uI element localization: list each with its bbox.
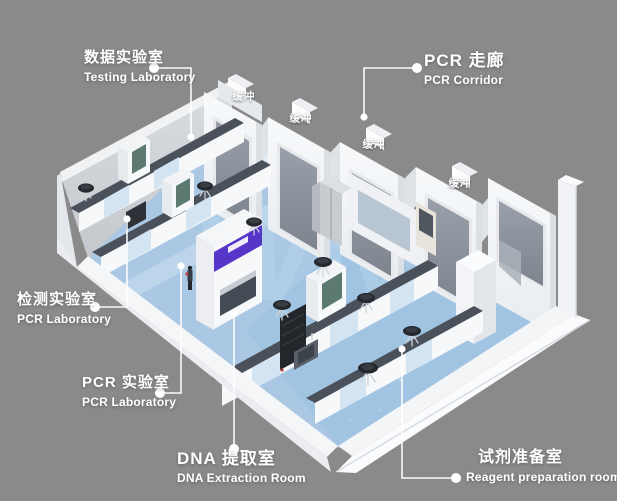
- callout-zh-label: DNA 提取室: [177, 449, 306, 468]
- buffer-room-label-2: 缓冲: [290, 111, 313, 126]
- leader-dot: [360, 113, 367, 120]
- leader-dot: [451, 473, 461, 483]
- buffer-room-label-3: 缓冲: [363, 137, 386, 152]
- callout-pcr-corridor: PCR 走廊 PCR Corridor: [424, 51, 505, 88]
- callout-zh-label: 检测实验室: [17, 290, 111, 309]
- leader-dot: [398, 345, 405, 352]
- callout-pcr-laboratory: PCR 实验室 PCR Laboratory: [82, 373, 176, 410]
- buffer-room-label-1: 缓冲: [233, 89, 256, 104]
- callout-en-label: Reagent preparation room: [466, 470, 617, 485]
- lab-floorplan-figure: WN: [0, 0, 617, 501]
- callout-detection-laboratory: 检测实验室 PCR Laboratory: [17, 290, 111, 327]
- callout-zh-label: 数据实验室: [84, 48, 195, 67]
- leader-dot: [187, 133, 194, 140]
- buffer-room-label-4: 缓冲: [449, 176, 472, 191]
- callout-en-label: PCR Laboratory: [17, 312, 111, 327]
- callout-dna-extraction-room: DNA 提取室 DNA Extraction Room: [177, 449, 306, 486]
- callout-zh-label: 试剂准备室: [478, 448, 617, 467]
- leader-dot: [230, 309, 237, 316]
- callout-zh-label: PCR 走廊: [424, 51, 505, 70]
- leader-dot: [177, 262, 184, 269]
- callout-reagent-preparation-room: 试剂准备室 Reagent preparation room: [466, 448, 617, 485]
- callout-testing-laboratory: 数据实验室 Testing Laboratory: [84, 48, 195, 85]
- callout-zh-label: PCR 实验室: [82, 373, 176, 392]
- callout-en-label: PCR Corridor: [424, 73, 505, 88]
- callout-en-label: PCR Laboratory: [82, 395, 176, 410]
- leader-dot: [412, 63, 422, 73]
- leader-dot: [123, 215, 130, 222]
- callout-en-label: Testing Laboratory: [84, 70, 195, 85]
- callout-en-label: DNA Extraction Room: [177, 471, 306, 486]
